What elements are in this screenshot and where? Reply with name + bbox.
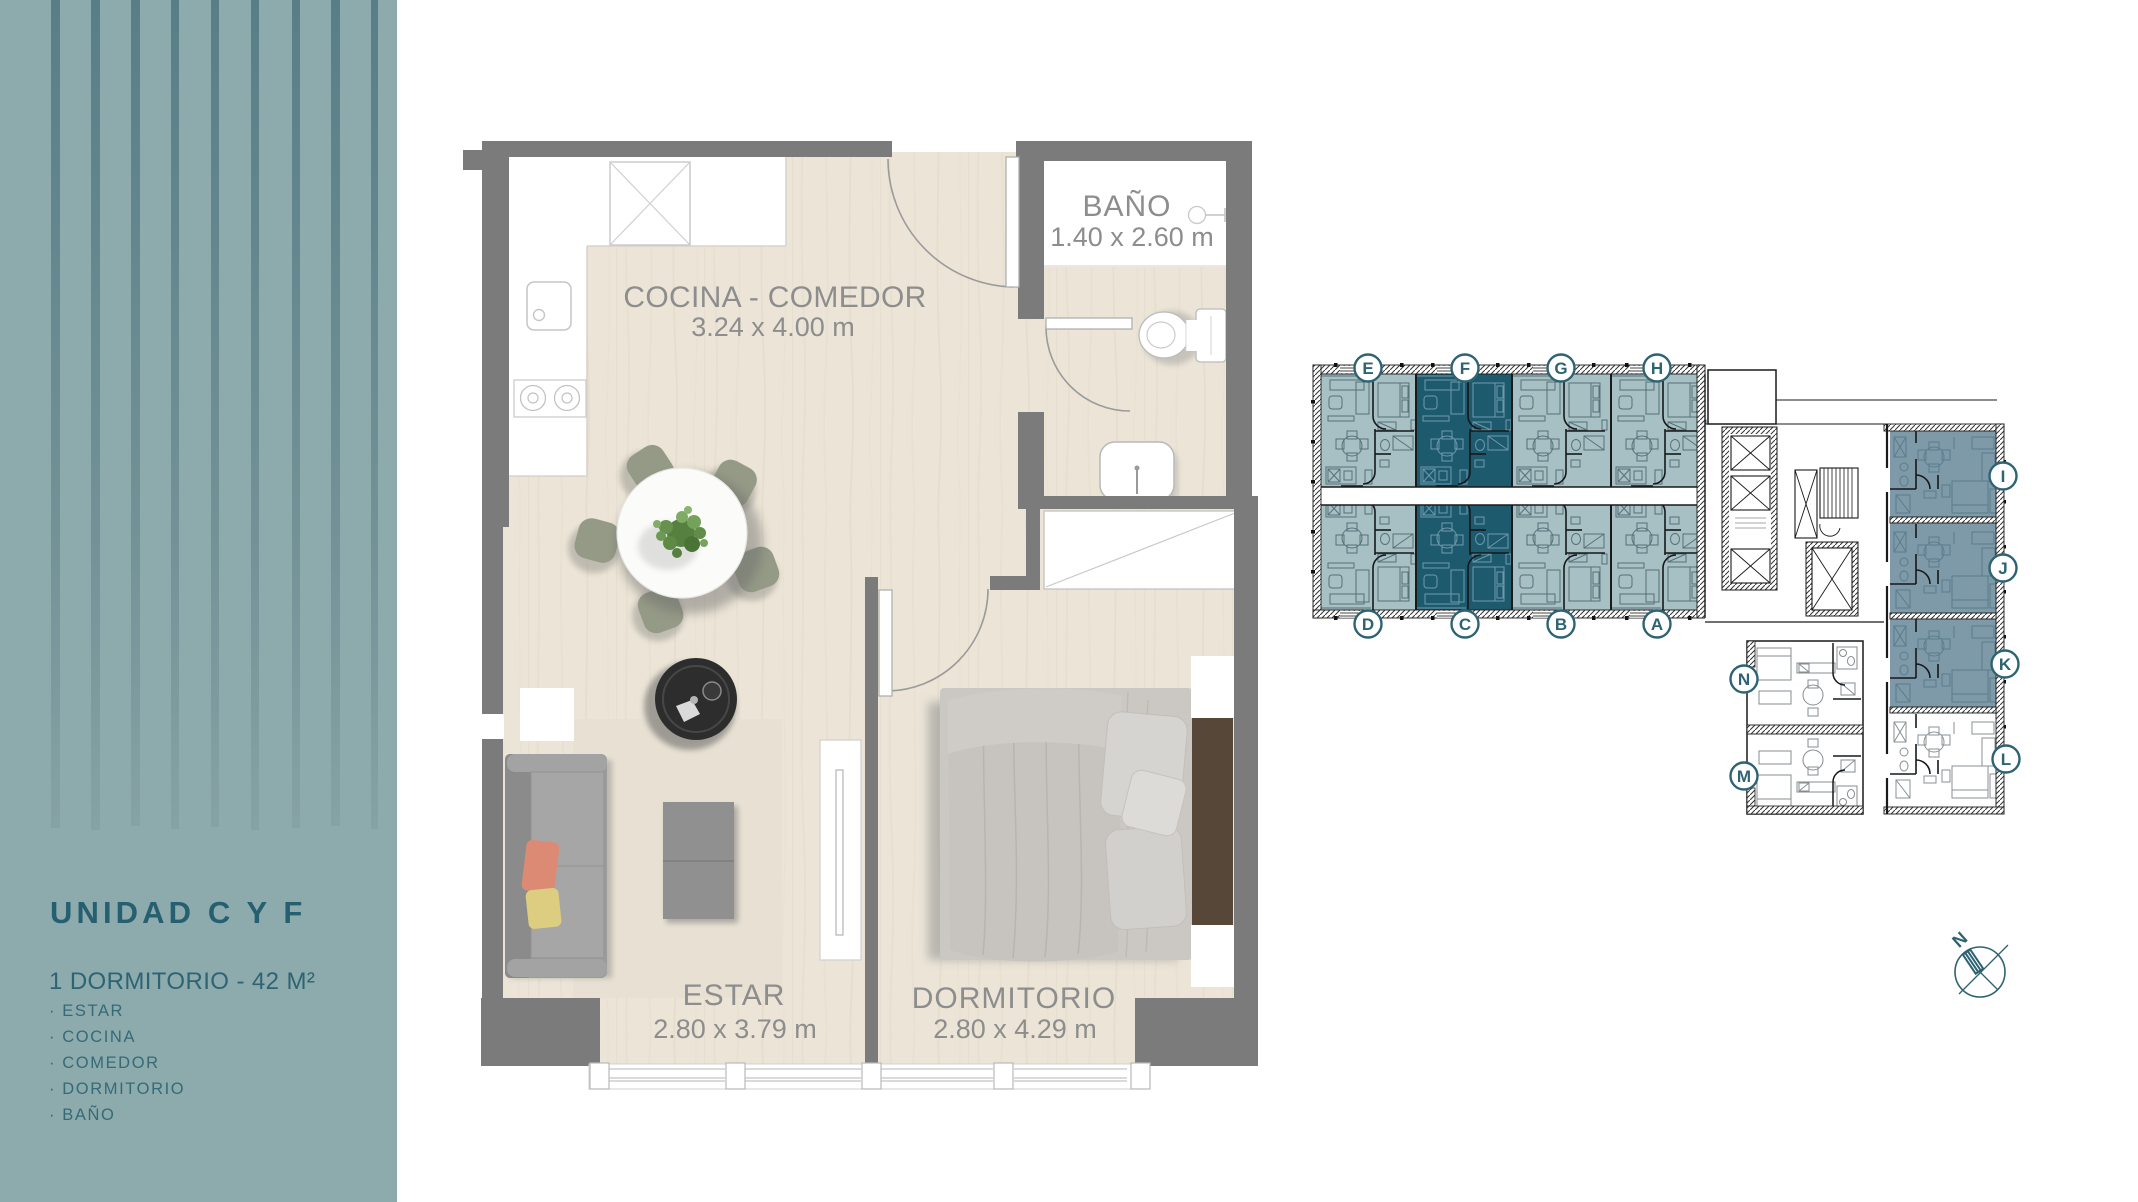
svg-text:M: M [1737,767,1751,786]
svg-text:K: K [1999,655,2012,674]
svg-text:H: H [1651,359,1663,378]
svg-text:C: C [1459,615,1471,634]
svg-text:G: G [1554,359,1567,378]
svg-text:N: N [1738,670,1750,689]
svg-text:1.40 x 2.60 m: 1.40 x 2.60 m [1050,222,1214,252]
svg-text:3.24 x 4.00 m: 3.24 x 4.00 m [691,312,855,342]
svg-text:D: D [1362,615,1374,634]
svg-text:B: B [1555,615,1567,634]
svg-text:COCINA - COMEDOR: COCINA - COMEDOR [623,281,926,314]
svg-text:BAÑO: BAÑO [1082,189,1171,223]
svg-text:I: I [2001,467,2006,486]
svg-text:2.80 x 3.79 m: 2.80 x 3.79 m [653,1014,817,1044]
svg-text:F: F [1460,359,1470,378]
svg-text:E: E [1362,359,1373,378]
svg-text:J: J [1998,559,2007,578]
svg-text:A: A [1651,615,1663,634]
svg-text:ESTAR: ESTAR [683,979,786,1012]
svg-text:N: N [1948,928,1971,952]
svg-text:L: L [2001,750,2011,769]
svg-text:2.80 x 4.29 m: 2.80 x 4.29 m [933,1014,1097,1044]
svg-text:DORMITORIO: DORMITORIO [912,982,1116,1015]
